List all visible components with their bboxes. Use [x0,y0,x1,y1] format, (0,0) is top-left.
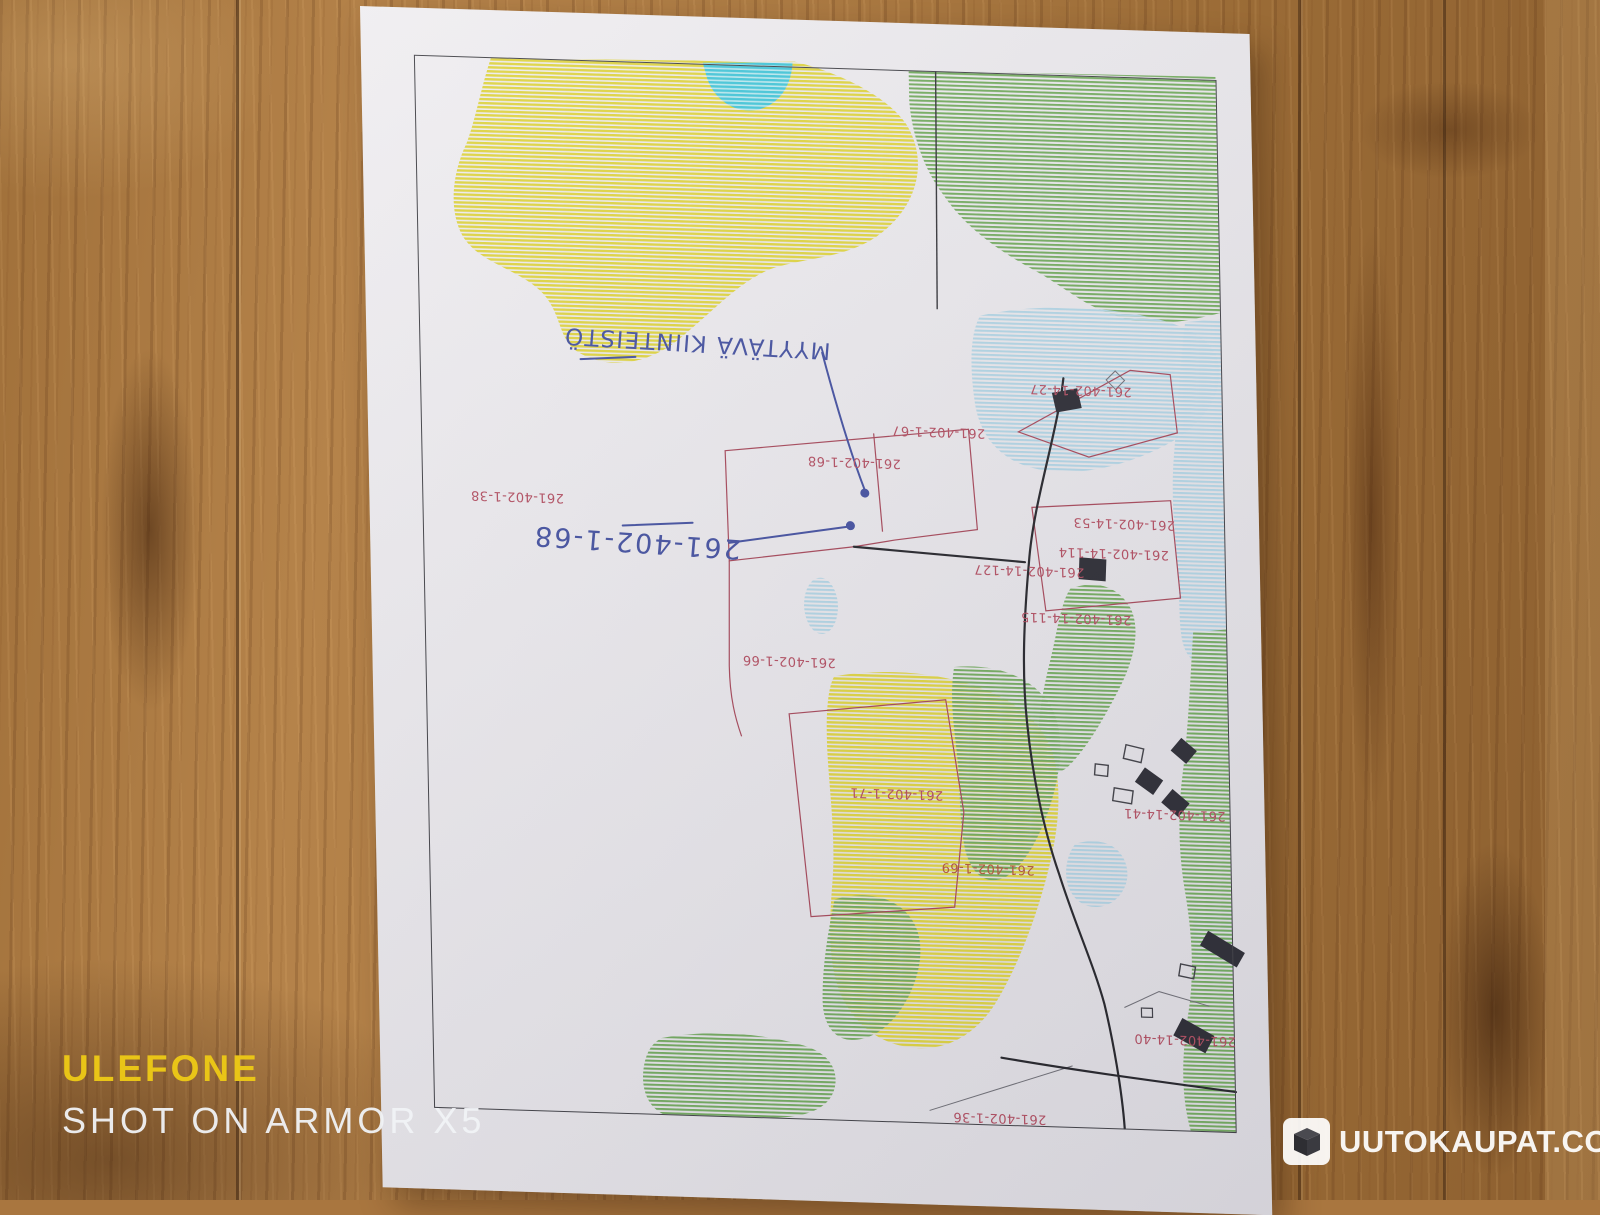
parcel-label: 261-402-1-71 [850,784,944,802]
parcel-label: 261-402-1-66 [742,652,836,670]
map-paper: 261-402-1-67 261-402-1-68 261-402-1-38 2… [360,6,1272,1215]
parcel-label: 261-402-1-69 [941,859,1035,877]
photo-of-map-on-table: { "photo_watermark": { "brand": "ULEFONE… [0,0,1600,1200]
parcel-label: 261-402-14-41 [1124,805,1226,823]
site-logo: UUTOKAUPAT.COM [1283,1118,1600,1165]
parcel-label: 261-402-1-36 [953,1109,1047,1127]
parcel-label: 261-402-14-53 [1073,514,1175,532]
parcel-label: 261-402-1-38 [470,487,564,505]
site-logo-text: UUTOKAUPAT.COM [1339,1124,1600,1160]
camera-watermark-caption: SHOT ON ARMOR X5 [62,1100,485,1142]
camera-watermark-brand: ULEFONE [62,1048,260,1090]
parcel-label: 261-402-1-68 [807,453,901,471]
map-frame-border [414,55,1237,1133]
parcel-label: 261-402-14-40 [1134,1030,1236,1048]
parcel-label: 261-402-1-67 [892,422,986,440]
parcel-label: 261-402-14-27 [1029,381,1131,399]
box-cube-icon [1283,1118,1330,1165]
